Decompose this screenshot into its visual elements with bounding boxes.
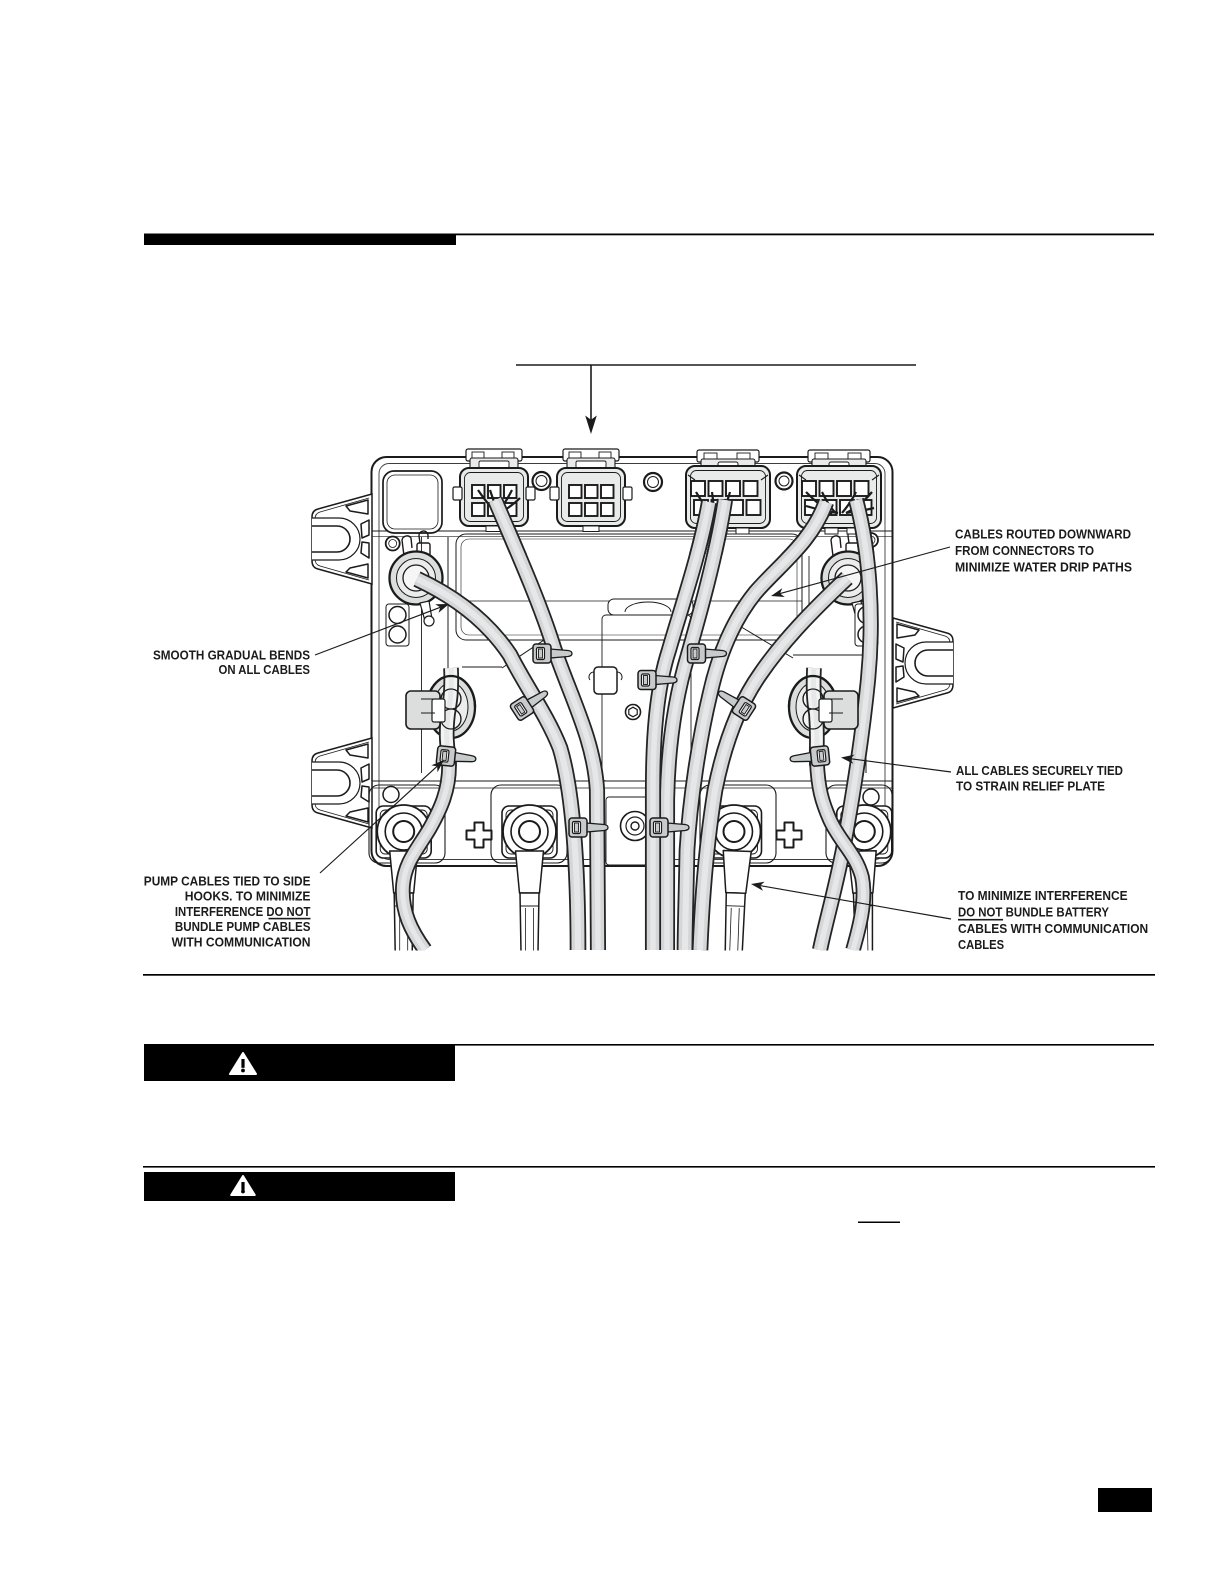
- svg-text:CABLES: CABLES: [958, 937, 1004, 952]
- svg-text:FROM CONNECTORS TO: FROM CONNECTORS TO: [955, 543, 1094, 558]
- svg-text:SMOOTH GRADUAL BENDS: SMOOTH GRADUAL BENDS: [153, 648, 310, 663]
- svg-text:ALL CABLES SECURELY TIED: ALL CABLES SECURELY TIED: [956, 763, 1123, 778]
- svg-text:DO NOT BUNDLE BATTERY: DO NOT BUNDLE BATTERY: [958, 905, 1109, 920]
- svg-text:MINIMIZE WATER DRIP PATHS: MINIMIZE WATER DRIP PATHS: [955, 559, 1132, 574]
- svg-text:INTERFERENCE DO NOT: INTERFERENCE DO NOT: [175, 904, 311, 919]
- svg-text:BUNDLE PUMP CABLES: BUNDLE PUMP CABLES: [175, 919, 311, 934]
- svg-text:CABLES ROUTED DOWNWARD: CABLES ROUTED DOWNWARD: [955, 527, 1131, 542]
- svg-text:TO STRAIN RELIEF PLATE: TO STRAIN RELIEF PLATE: [956, 779, 1105, 794]
- svg-text:WITH COMMUNICATION: WITH COMMUNICATION: [172, 935, 311, 950]
- svg-text:CABLES WITH COMMUNICATION: CABLES WITH COMMUNICATION: [958, 921, 1148, 936]
- svg-text:HOOKS. TO MINIMIZE: HOOKS. TO MINIMIZE: [185, 889, 311, 904]
- svg-text:PUMP CABLES TIED TO SIDE: PUMP CABLES TIED TO SIDE: [144, 873, 311, 888]
- svg-text:ON ALL CABLES: ON ALL CABLES: [219, 662, 311, 677]
- svg-text:TO MINIMIZE INTERFERENCE: TO MINIMIZE INTERFERENCE: [958, 888, 1128, 903]
